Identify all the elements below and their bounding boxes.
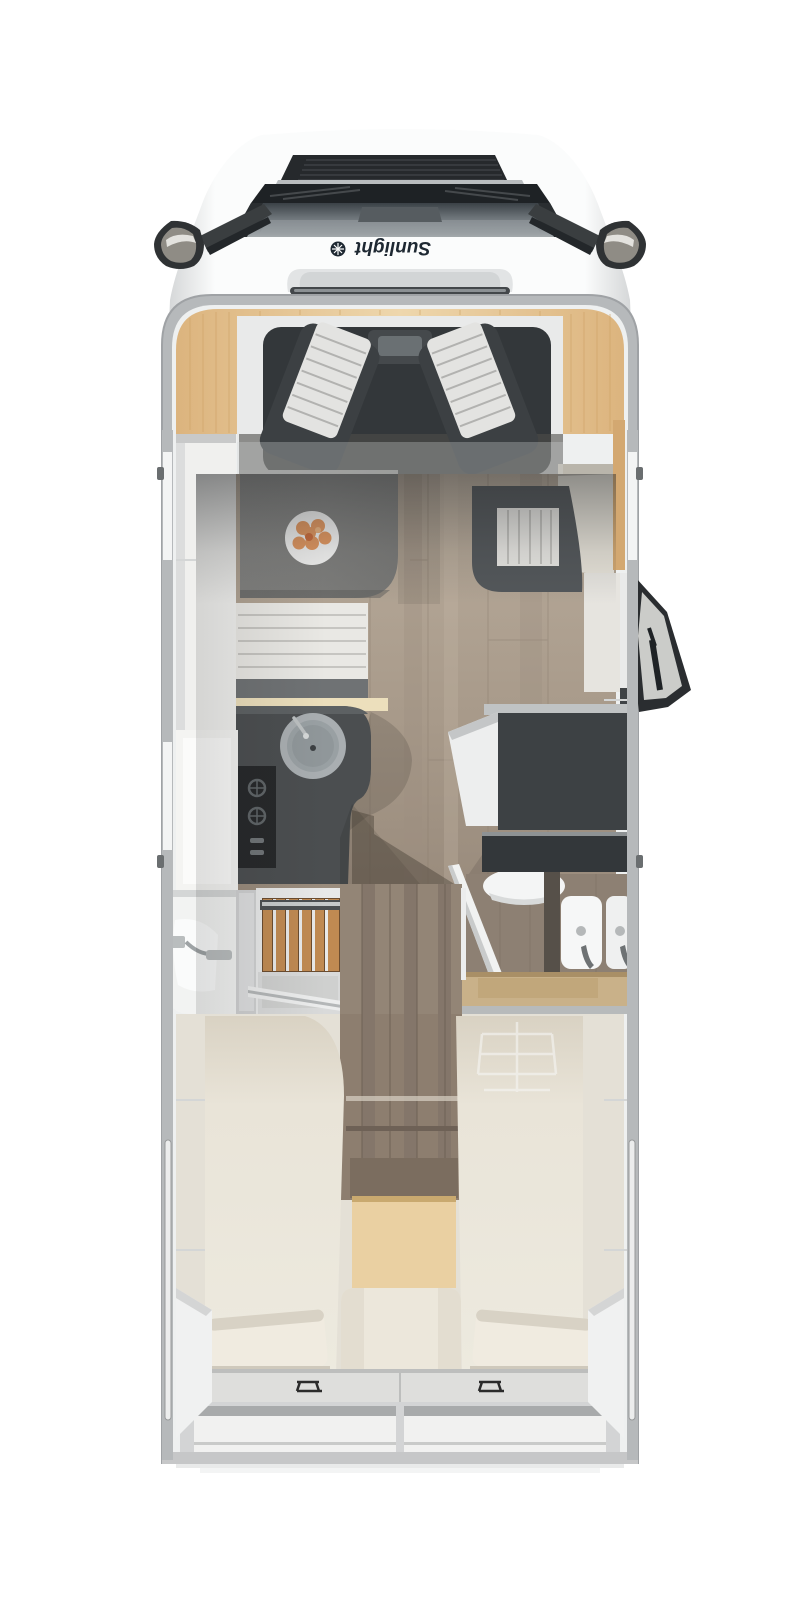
- svg-text:Sunlight: Sunlight: [354, 237, 431, 258]
